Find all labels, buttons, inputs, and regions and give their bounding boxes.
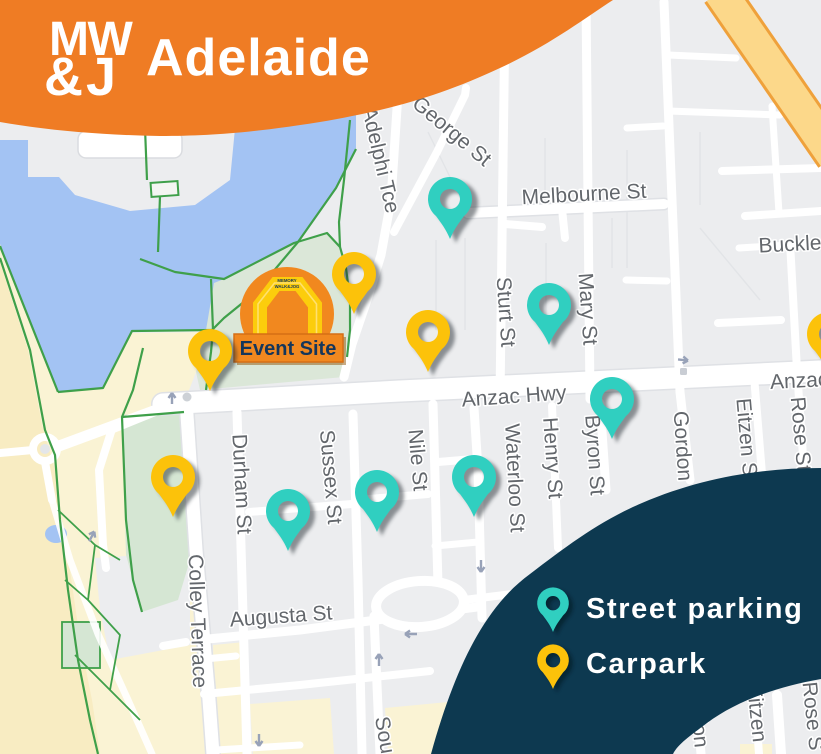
svg-text:Street parking: Street parking <box>586 593 803 625</box>
svg-text:Buckle: Buckle <box>758 231 821 257</box>
svg-text:WALK&JOG: WALK&JOG <box>275 284 300 289</box>
svg-text:&J: &J <box>44 47 119 107</box>
svg-text:MEMORY: MEMORY <box>277 278 296 283</box>
svg-text:Carpark: Carpark <box>586 648 707 680</box>
svg-text:Adelaide: Adelaide <box>146 29 371 87</box>
svg-text:Sturt St: Sturt St <box>492 276 520 348</box>
svg-text:Anzac Hwy: Anzac Hwy <box>769 365 821 393</box>
svg-text:Colley Terrace: Colley Terrace <box>184 554 212 689</box>
svg-text:Event Site: Event Site <box>240 338 337 360</box>
svg-text:Gordon: Gordon <box>669 410 697 481</box>
